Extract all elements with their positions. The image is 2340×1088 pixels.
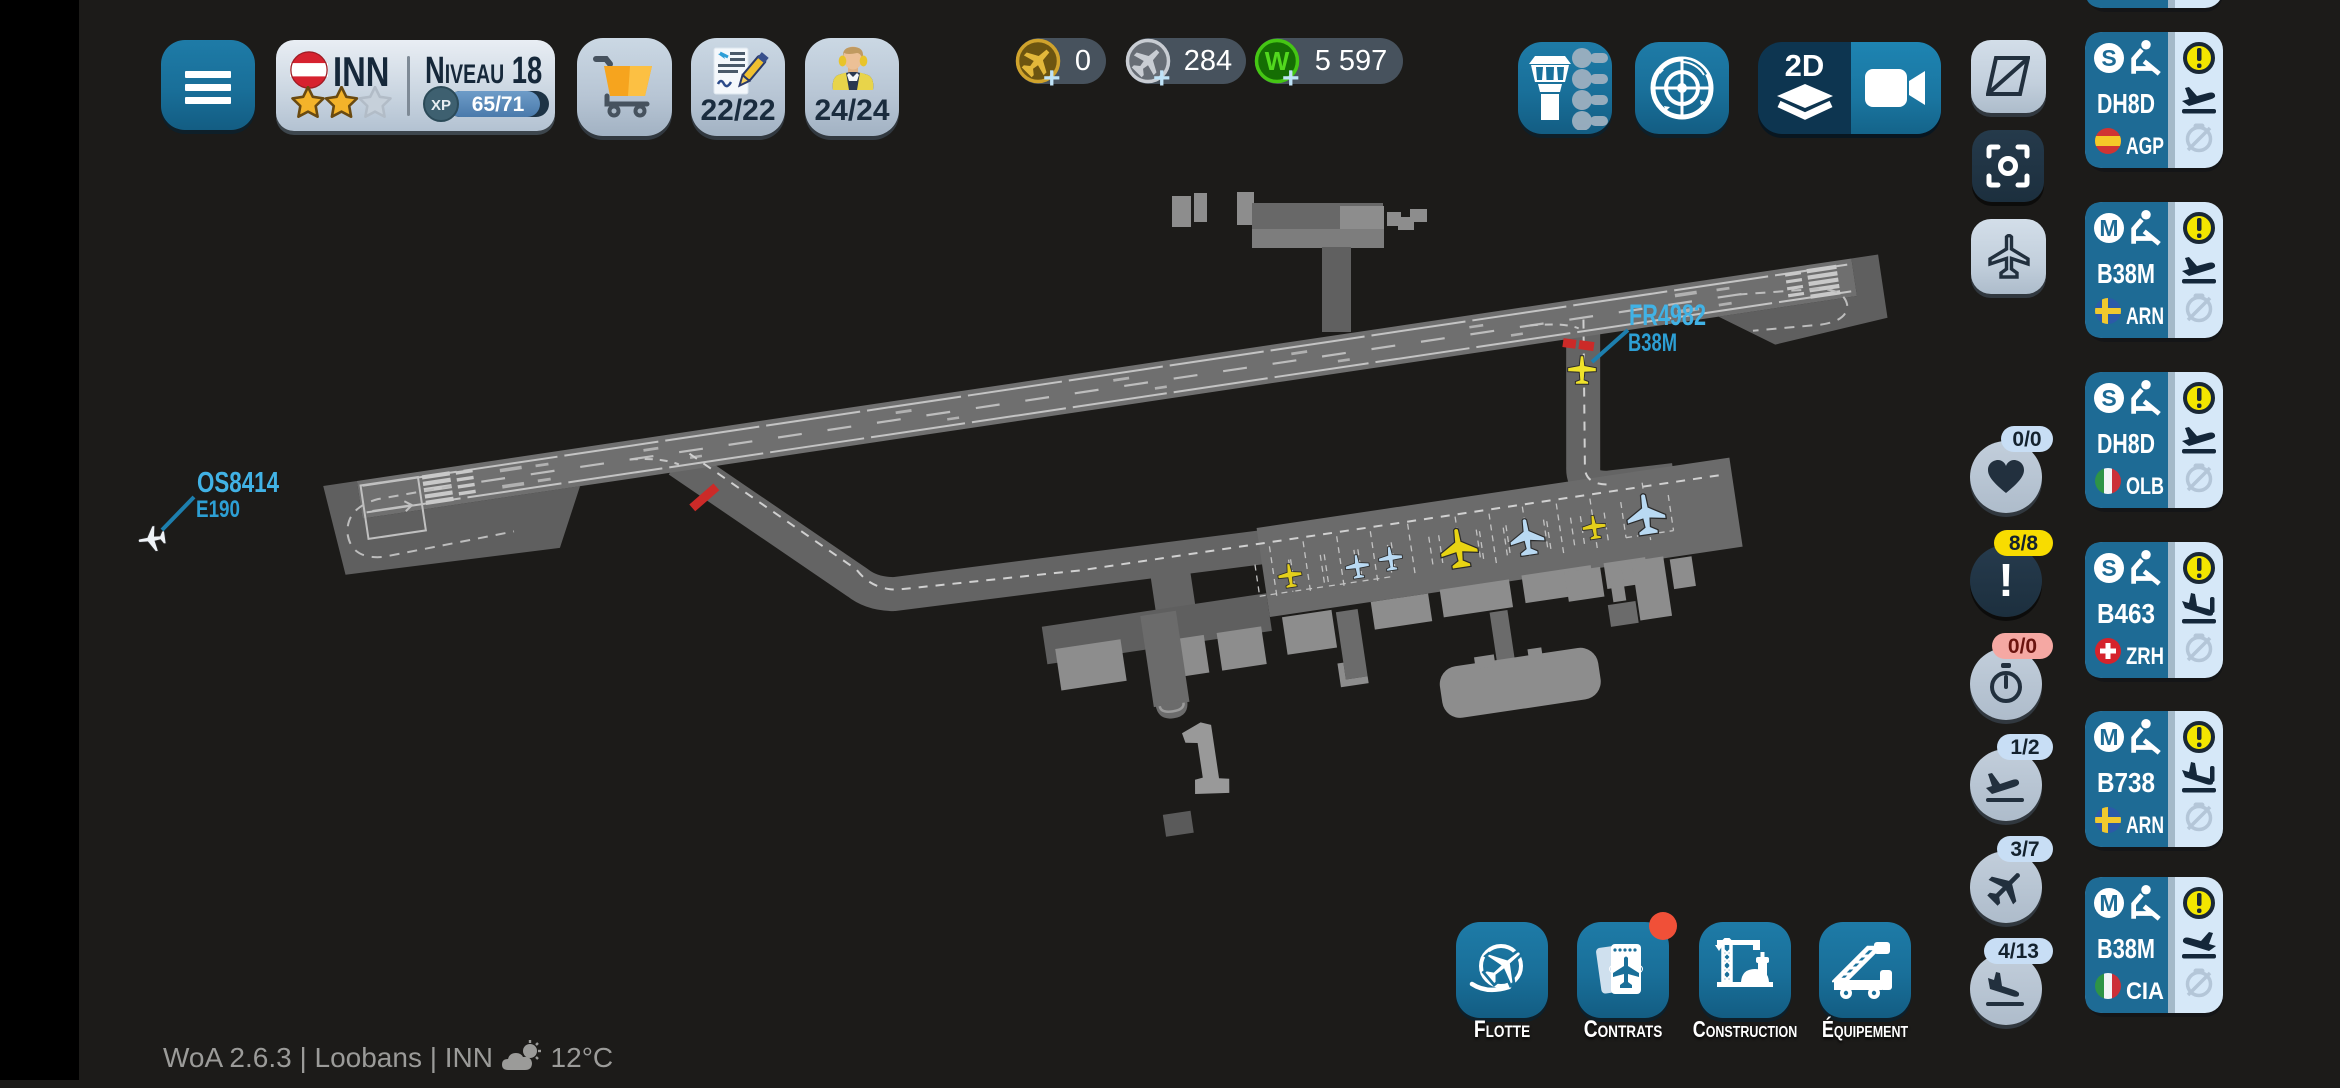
- svg-text:S: S: [2101, 385, 2116, 411]
- svg-text:B463: B463: [2097, 598, 2155, 629]
- svg-text:M: M: [2099, 724, 2118, 750]
- svg-text:AGP: AGP: [2126, 133, 2164, 160]
- svg-text:M: M: [2099, 890, 2118, 916]
- svg-text:DH8D: DH8D: [2097, 88, 2155, 119]
- svg-text:ZRH: ZRH: [2126, 643, 2164, 670]
- svg-text:M: M: [2099, 215, 2118, 241]
- svg-text:ARN: ARN: [2126, 303, 2164, 330]
- svg-text:B38M: B38M: [2097, 933, 2155, 964]
- svg-text:B738: B738: [2097, 767, 2155, 798]
- svg-text:B38M: B38M: [2097, 258, 2155, 289]
- svg-text:OLB: OLB: [2126, 473, 2164, 500]
- svg-text:CIA: CIA: [2126, 978, 2164, 1005]
- svg-text:S: S: [2101, 555, 2116, 581]
- svg-text:DH8D: DH8D: [2097, 428, 2155, 459]
- svg-text:S: S: [2101, 45, 2116, 71]
- svg-text:XP: XP: [431, 97, 451, 114]
- svg-text:ARN: ARN: [2126, 812, 2164, 839]
